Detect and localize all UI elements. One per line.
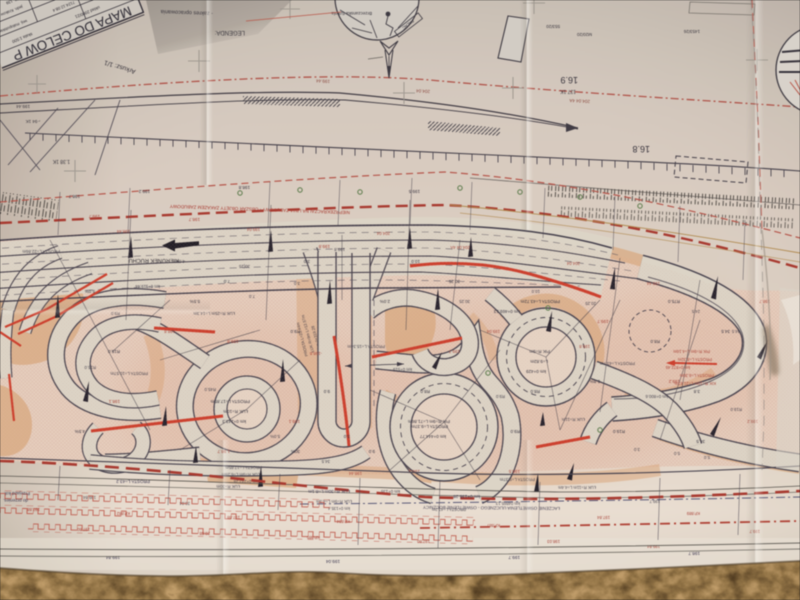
svg-text:km 0+872.46: km 0+872.46 (665, 365, 690, 370)
svg-text:9.0: 9.0 (323, 389, 330, 394)
svg-text:PIK R=9m L=4.16m: PIK R=9m L=4.16m (673, 349, 710, 354)
svg-text:Przejazd kol.: Przejazd kol. (4, 491, 30, 496)
svg-text:199.84: 199.84 (106, 555, 120, 560)
svg-text:198.7: 198.7 (188, 217, 200, 222)
svg-text:KP.884: KP.884 (336, 519, 350, 524)
svg-text:199.1: 199.1 (288, 419, 300, 424)
svg-text:199.7: 199.7 (448, 349, 460, 354)
svg-text:204.04: 204.04 (376, 231, 390, 236)
svg-text:PROSTA L=43.7m: PROSTA L=43.7m (599, 361, 635, 366)
svg-text:R45.0: R45.0 (204, 387, 216, 392)
svg-text:Brzeczanska Szkola: Brzeczanska Szkola (331, 11, 372, 16)
svg-text:PROSTA L=6.30m: PROSTA L=6.30m (679, 373, 714, 378)
svg-text:-199.8: -199.8 (227, 339, 240, 344)
svg-text:KP.882: KP.882 (116, 511, 130, 516)
svg-text:km 0+429: km 0+429 (526, 369, 546, 374)
svg-text:198.7: 198.7 (68, 194, 80, 199)
svg-text:do przenies.: do przenies. (3, 498, 28, 503)
svg-text:4.5%: 4.5% (75, 429, 85, 434)
svg-text:KP.889: KP.889 (686, 511, 700, 516)
svg-text:198.8: 198.8 (164, 329, 175, 334)
svg-text:16.8: 16.8 (632, 144, 650, 154)
svg-text:PROSTA L=9.37m: PROSTA L=9.37m (411, 424, 448, 429)
svg-text:R8.0: R8.0 (420, 389, 430, 394)
svg-text:197.84: 197.84 (597, 515, 610, 520)
svg-text:198.44: 198.44 (348, 471, 362, 476)
svg-text:20.88: 20.88 (199, 531, 210, 536)
svg-text:34.5: 34.5 (731, 329, 740, 334)
svg-text:PROSTA L=8.32m: PROSTA L=8.32m (677, 357, 712, 362)
svg-text:R15.0: R15.0 (84, 365, 96, 370)
svg-text:KP.887: KP.887 (486, 523, 500, 528)
svg-text:R15.0: R15.0 (107, 349, 120, 354)
svg-text:34.5: 34.5 (696, 439, 705, 444)
svg-text:3.0: 3.0 (303, 259, 310, 264)
svg-text:R8.0: R8.0 (530, 389, 540, 394)
svg-text:R9.0: R9.0 (290, 329, 300, 334)
svg-text:km 0+243.3: km 0+243.3 (222, 419, 246, 424)
svg-text:198.3: 198.3 (408, 469, 420, 474)
svg-text:PIK R=9m: PIK R=9m (529, 349, 550, 354)
svg-text:198.1: 198.1 (108, 399, 120, 404)
svg-text:137 1K: 137 1K (559, 88, 576, 94)
svg-text:km 0+800.6: km 0+800.6 (645, 394, 668, 399)
svg-text:5.0: 5.0 (703, 455, 710, 460)
svg-text:km 0+469.13: km 0+469.13 (493, 309, 520, 314)
svg-text:M20/20: M20/20 (576, 32, 592, 37)
svg-text:KP.885: KP.885 (306, 535, 320, 540)
svg-text:R8.0: R8.0 (650, 339, 660, 344)
svg-text:199.44: 199.44 (646, 281, 660, 286)
svg-text:34.5: 34.5 (321, 459, 330, 464)
svg-text:ŁUK R=11m L=4.4m: ŁUK R=11m L=4.4m (558, 485, 596, 490)
svg-text:ŁUK R=10m: ŁUK R=10m (223, 409, 248, 414)
svg-text:1.38 1K: 1.38 1K (52, 158, 70, 164)
svg-text:km 0+519: km 0+519 (392, 367, 412, 372)
svg-text:PROSTA L=15.34m: PROSTA L=15.34m (347, 344, 385, 349)
svg-text:199.7: 199.7 (508, 555, 520, 560)
svg-text:PROSTA L=43.72m: PROSTA L=43.72m (520, 299, 560, 304)
svg-text:197.80: 197.80 (77, 527, 90, 532)
svg-text:199.84: 199.84 (647, 544, 660, 549)
svg-text:199.04: 199.04 (326, 559, 340, 564)
svg-text:20.25: 20.25 (585, 301, 596, 306)
svg-text:km 0+444.77: km 0+444.77 (419, 434, 446, 439)
svg-text:4.0%: 4.0% (175, 259, 185, 264)
svg-text:7.0: 7.0 (223, 279, 230, 284)
svg-text:197.88: 197.88 (27, 507, 40, 512)
svg-text:km 0+135.28: km 0+135.28 (453, 494, 480, 499)
svg-text:5.8%: 5.8% (590, 379, 600, 384)
svg-text:LEGENDA:: LEGENDA: (214, 29, 245, 35)
svg-text:1453/26: 1453/26 (683, 29, 700, 34)
svg-text:⌐94 1K: ⌐94 1K (26, 119, 40, 124)
svg-text:10.0: 10.0 (531, 289, 540, 294)
svg-text:3.0: 3.0 (343, 434, 350, 439)
svg-text:199.5: 199.5 (408, 189, 420, 194)
svg-text:204.04 4A: 204.04 4A (450, 245, 470, 250)
svg-text:199.04: 199.04 (486, 329, 500, 334)
svg-text:34.5: 34.5 (721, 329, 730, 334)
svg-text:5.0: 5.0 (673, 451, 680, 456)
svg-text:PROSTA L=43.2: PROSTA L=43.2 (116, 479, 150, 484)
svg-text:PROSTA L=17.85m: PROSTA L=17.85m (210, 399, 250, 404)
svg-text:-198.8: -198.8 (309, 351, 322, 356)
svg-text:198.5: 198.5 (508, 469, 520, 474)
svg-text:R75.0: R75.0 (667, 299, 680, 304)
svg-text:R19.0: R19.0 (730, 407, 742, 412)
svg-text:km 0+135.4: km 0+135.4 (327, 506, 350, 511)
svg-text:24.5: 24.5 (691, 309, 700, 314)
svg-text:553/20: 553/20 (546, 24, 560, 29)
svg-text:198.8: 198.8 (238, 185, 250, 190)
svg-text:R9.0: R9.0 (510, 429, 520, 434)
svg-text:199.7: 199.7 (88, 214, 100, 219)
svg-text:L=9.82m: L=9.82m (530, 359, 548, 364)
svg-text:3.8: 3.8 (693, 389, 700, 394)
svg-text:PIK R=9m L=71.86m: PIK R=9m L=71.86m (408, 419, 450, 424)
svg-text:204.04: 204.04 (566, 261, 580, 266)
svg-text:5.0%: 5.0% (85, 289, 95, 294)
svg-text:2.0%: 2.0% (380, 299, 390, 304)
svg-text:R19.0: R19.0 (612, 429, 625, 434)
svg-text:198.44: 198.44 (116, 229, 130, 234)
svg-text:ŁUK R=30m L=8.1m: ŁUK R=30m L=8.1m (308, 489, 350, 494)
svg-text:197.80: 197.80 (417, 539, 430, 544)
svg-text:199.44: 199.44 (16, 104, 30, 109)
svg-text:9.0: 9.0 (368, 449, 375, 454)
svg-text:-199.7: -199.7 (597, 319, 610, 324)
svg-text:KIK R=10m L=21.67m: KIK R=10m L=21.67m (674, 381, 716, 386)
svg-text:204.04: 204.04 (416, 88, 431, 94)
svg-text:199.44: 199.44 (316, 78, 331, 84)
svg-text:30.25: 30.25 (459, 299, 470, 304)
svg-text:30.25: 30.25 (448, 279, 460, 284)
svg-text:ŁUK R=11m: ŁUK R=11m (561, 417, 585, 422)
svg-text:16.9: 16.9 (560, 75, 578, 85)
svg-text:199.8: 199.8 (579, 344, 590, 349)
svg-text:198.03: 198.03 (547, 539, 560, 544)
svg-text:PROSTA L=10.57m: PROSTA L=10.57m (110, 371, 148, 376)
svg-text:km 0+119.44: km 0+119.44 (135, 284, 160, 289)
svg-text:198.7: 198.7 (688, 551, 700, 556)
svg-text:10.0: 10.0 (411, 259, 420, 264)
svg-text:5.0%: 5.0% (270, 434, 280, 439)
svg-text:199.8: 199.8 (318, 244, 330, 249)
svg-text:PROSTA L=22.86m: PROSTA L=22.86m (22, 249, 60, 254)
svg-text:30%: 30% (291, 449, 300, 454)
svg-text:3.0: 3.0 (633, 447, 640, 452)
svg-text:199.04: 199.04 (246, 227, 260, 232)
svg-text:R9.0: R9.0 (495, 394, 505, 399)
svg-text:199.2: 199.2 (138, 189, 150, 194)
